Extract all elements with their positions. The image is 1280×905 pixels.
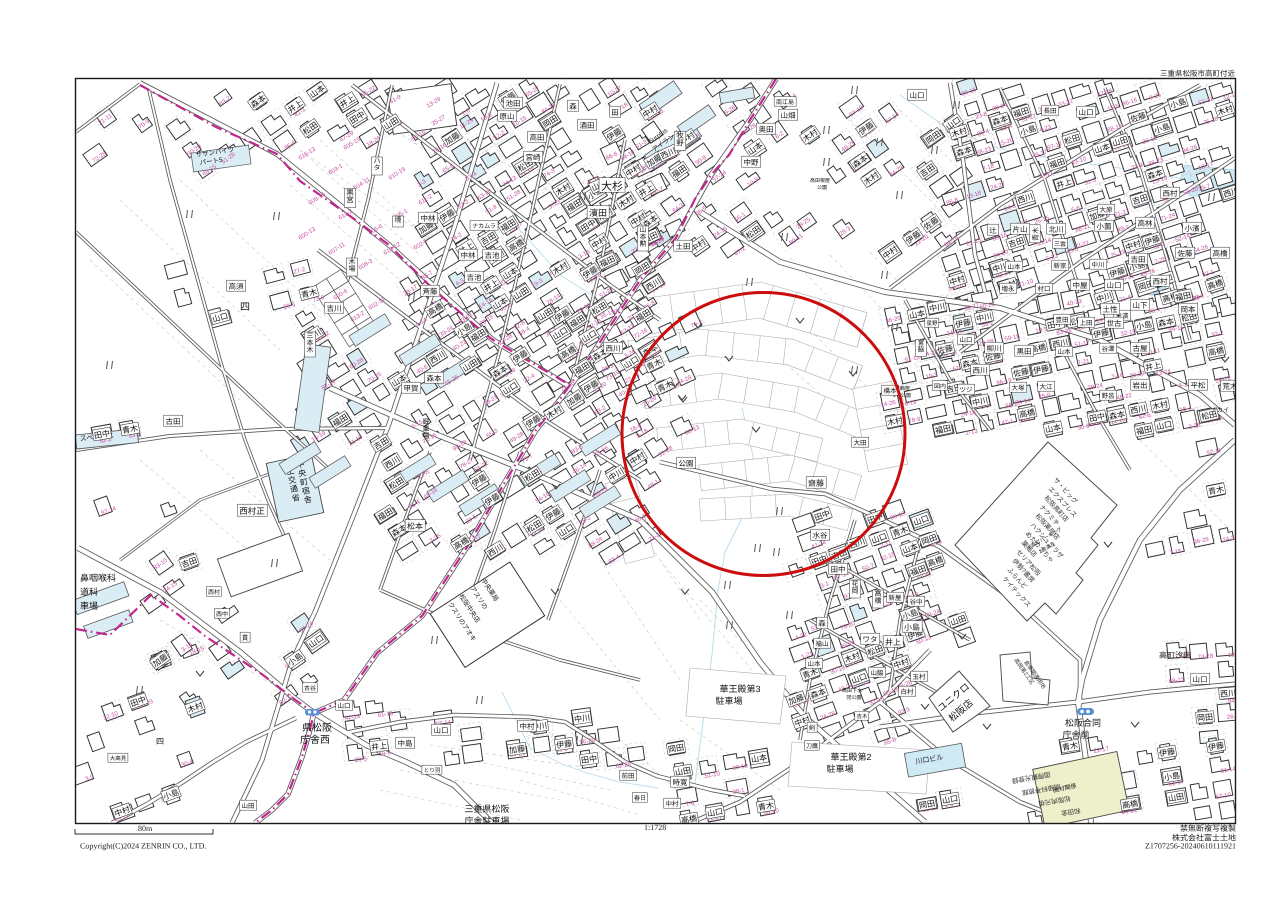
svg-text:団公園: 団公園 xyxy=(846,694,861,701)
svg-text:齋藤: 齋藤 xyxy=(808,479,824,488)
svg-text:高須: 高須 xyxy=(229,282,244,291)
svg-text:古田: 古田 xyxy=(166,417,181,426)
svg-text:Z1707256-20240610111921: Z1707256-20240610111921 xyxy=(1145,842,1236,851)
svg-text:山口: 山口 xyxy=(910,91,925,100)
svg-text:大高見: 大高見 xyxy=(110,755,127,762)
svg-text:中川: 中川 xyxy=(1092,261,1105,269)
svg-text:高田下水: 高田下水 xyxy=(842,687,862,694)
svg-text:大江: 大江 xyxy=(1040,383,1054,391)
svg-text:三重県松阪市高町付近: 三重県松阪市高町付近 xyxy=(1160,69,1235,78)
svg-text:庁舎前: 庁舎前 xyxy=(1062,730,1089,740)
svg-text:青木: 青木 xyxy=(1032,227,1040,241)
svg-text:剣: 剣 xyxy=(809,724,816,732)
svg-text:四: 四 xyxy=(156,737,164,746)
svg-text:小濱: 小濱 xyxy=(1185,224,1201,233)
svg-text:谷澤: 谷澤 xyxy=(1102,345,1116,353)
svg-text:森: 森 xyxy=(818,619,826,628)
svg-text:中林: 中林 xyxy=(461,251,476,260)
svg-text:佐藤: 佐藤 xyxy=(1178,249,1194,258)
svg-text:高町汐田: 高町汐田 xyxy=(1159,651,1191,660)
svg-text:吉池: 吉池 xyxy=(467,273,482,282)
svg-text:豊田: 豊田 xyxy=(1056,316,1069,324)
svg-text:高田: 高田 xyxy=(530,133,545,142)
svg-text:大原: 大原 xyxy=(1100,206,1114,214)
svg-text:黒田: 黒田 xyxy=(1017,347,1032,356)
svg-text:西川: 西川 xyxy=(1220,689,1237,699)
svg-text:松本: 松本 xyxy=(407,522,423,531)
svg-text:車場: 車場 xyxy=(80,601,98,611)
svg-text:西村: 西村 xyxy=(1163,189,1179,198)
svg-text:ワタ: ワタ xyxy=(863,635,878,644)
svg-text:星野: 星野 xyxy=(926,320,938,327)
svg-text:山口: 山口 xyxy=(338,702,351,710)
svg-text:山口: 山口 xyxy=(1079,108,1094,117)
svg-text:中林: 中林 xyxy=(421,214,436,223)
svg-text:貫: 貫 xyxy=(242,634,249,642)
svg-text:刀鷹: 刀鷹 xyxy=(806,742,818,750)
svg-text:増永: 増永 xyxy=(1002,285,1016,293)
svg-text:山本: 山本 xyxy=(808,660,822,668)
svg-text:西村: 西村 xyxy=(1153,277,1169,286)
svg-text:68-12: 68-12 xyxy=(1169,677,1186,685)
svg-text:西村正: 西村正 xyxy=(239,506,265,516)
svg-text:木場: 木場 xyxy=(349,258,356,273)
svg-text:村口: 村口 xyxy=(1038,285,1051,293)
svg-text:ツジ: ツジ xyxy=(960,386,974,394)
svg-text:山田: 山田 xyxy=(242,802,255,810)
svg-text:酒田: 酒田 xyxy=(580,121,595,130)
svg-text:岩出: 岩出 xyxy=(1133,381,1148,390)
svg-text:県松阪: 県松阪 xyxy=(302,722,332,734)
svg-text:74-28: 74-28 xyxy=(1198,653,1215,661)
svg-text:世古: 世古 xyxy=(1107,319,1123,328)
svg-text:高橋: 高橋 xyxy=(875,590,882,605)
svg-text:橋本: 橋本 xyxy=(884,387,898,395)
svg-text:山口: 山口 xyxy=(1107,281,1122,290)
svg-text:宮脇: 宮脇 xyxy=(918,339,925,354)
svg-text:岡本: 岡本 xyxy=(1181,305,1197,314)
svg-text:井上: 井上 xyxy=(885,638,901,647)
svg-text:平松: 平松 xyxy=(1191,381,1207,390)
svg-text:前田: 前田 xyxy=(622,772,635,780)
svg-text:土田: 土田 xyxy=(676,242,691,251)
svg-text:柳川: 柳川 xyxy=(987,344,1002,353)
svg-text:辻: 辻 xyxy=(989,226,997,235)
svg-text:西川: 西川 xyxy=(973,366,988,375)
svg-text:山本: 山本 xyxy=(1008,263,1022,271)
svg-text:1:1728: 1:1728 xyxy=(644,823,666,832)
svg-text:山口: 山口 xyxy=(1193,675,1208,684)
svg-text:華王殿第2: 華王殿第2 xyxy=(830,752,871,762)
svg-text:時寛: 時寛 xyxy=(673,778,688,787)
svg-text:中島: 中島 xyxy=(398,739,413,748)
svg-text:松阪合同: 松阪合同 xyxy=(1065,718,1101,728)
svg-text:中村: 中村 xyxy=(520,722,535,731)
svg-text:大田: 大田 xyxy=(854,439,867,447)
svg-text:黒宮: 黒宮 xyxy=(346,188,354,205)
svg-text:池田: 池田 xyxy=(506,99,521,108)
svg-text:小島: 小島 xyxy=(904,623,920,632)
svg-text:ハタ: ハタ xyxy=(374,158,381,172)
svg-text:岡田: 岡田 xyxy=(1197,713,1214,723)
svg-text:道科: 道科 xyxy=(80,587,98,597)
svg-text:新屋: 新屋 xyxy=(889,594,903,602)
svg-text:新家: 新家 xyxy=(1054,262,1068,270)
svg-text:吉川: 吉川 xyxy=(327,304,342,313)
svg-text:80m: 80m xyxy=(138,824,153,833)
svg-text:中村: 中村 xyxy=(666,800,680,808)
svg-text:奥田: 奥田 xyxy=(759,125,774,134)
svg-text:山畑: 山畑 xyxy=(781,111,796,120)
svg-text:南江島: 南江島 xyxy=(776,98,794,106)
svg-text:上田: 上田 xyxy=(1080,319,1093,327)
svg-text:宮崎: 宮崎 xyxy=(526,153,541,162)
svg-text:厩車場: 厩車場 xyxy=(423,418,430,440)
svg-text:山下: 山下 xyxy=(1133,301,1149,310)
svg-text:田: 田 xyxy=(611,108,619,117)
svg-text:甲賀: 甲賀 xyxy=(404,384,419,393)
svg-text:庁舎西: 庁舎西 xyxy=(300,734,330,746)
svg-text:ナカイ: ナカイ xyxy=(1211,407,1229,414)
svg-text:玉村: 玉村 xyxy=(913,673,927,681)
svg-text:原山: 原山 xyxy=(500,112,515,121)
svg-text:山口: 山口 xyxy=(960,336,973,344)
svg-text:古谷: 古谷 xyxy=(304,684,316,692)
svg-text:大塚: 大塚 xyxy=(1012,384,1026,392)
svg-text:高田根屋: 高田根屋 xyxy=(810,177,830,184)
svg-text:山脇: 山脇 xyxy=(871,669,885,677)
svg-text:森: 森 xyxy=(569,102,577,111)
svg-text:中野: 中野 xyxy=(744,158,759,167)
svg-text:西村: 西村 xyxy=(208,588,220,596)
svg-text:華王殿第3: 華王殿第3 xyxy=(719,684,760,694)
svg-text:四: 四 xyxy=(240,302,250,313)
svg-text:とり羽: とり羽 xyxy=(424,767,441,774)
svg-text:吉田: 吉田 xyxy=(1131,255,1146,264)
svg-text:三重県松阪: 三重県松阪 xyxy=(464,804,509,814)
svg-text:斉藤: 斉藤 xyxy=(423,287,438,296)
svg-text:西川: 西川 xyxy=(606,344,621,353)
svg-text:大杉: 大杉 xyxy=(601,180,623,193)
svg-text:Copyright(C)2024 ZENRIN CO., L: Copyright(C)2024 ZENRIN CO., LTD. xyxy=(80,842,206,851)
svg-text:土性: 土性 xyxy=(1103,305,1119,314)
svg-text:花岡: 花岡 xyxy=(852,580,859,595)
svg-text:図内: 図内 xyxy=(934,382,946,390)
svg-text:駐車場: 駐車場 xyxy=(826,764,853,774)
svg-text:公園: 公園 xyxy=(817,184,827,191)
svg-text:濱田: 濱田 xyxy=(589,208,607,218)
svg-text:白村: 白村 xyxy=(901,688,915,696)
svg-text:長田: 長田 xyxy=(1044,107,1057,115)
svg-text:高林: 高林 xyxy=(1138,219,1154,228)
svg-text:山本: 山本 xyxy=(1058,348,1072,356)
svg-text:禁無断複写複製: 禁無断複写複製 xyxy=(1180,824,1236,833)
svg-text:谷中: 谷中 xyxy=(910,598,923,606)
svg-text:春日: 春日 xyxy=(634,794,646,802)
svg-text:水谷: 水谷 xyxy=(813,531,828,540)
svg-text:野呂: 野呂 xyxy=(1102,392,1115,400)
svg-text:小薗: 小薗 xyxy=(1097,222,1113,231)
svg-text:片山: 片山 xyxy=(1013,225,1028,234)
svg-text:西中: 西中 xyxy=(216,610,228,618)
svg-text:牧野: 牧野 xyxy=(676,131,684,148)
svg-text:ナカムラ: ナカムラ xyxy=(472,223,496,230)
svg-text:鼻咽喉科: 鼻咽喉科 xyxy=(80,573,116,583)
svg-text:中屋: 中屋 xyxy=(1073,281,1089,290)
svg-text:山本勲: 山本勲 xyxy=(640,226,647,248)
svg-text:三本木: 三本木 xyxy=(307,332,314,354)
svg-text:公園: 公園 xyxy=(679,459,694,468)
svg-text:駐車場: 駐車場 xyxy=(715,696,742,706)
svg-text:福山: 福山 xyxy=(816,640,829,648)
svg-text:田中: 田中 xyxy=(831,565,846,574)
svg-text:北川: 北川 xyxy=(1049,225,1064,234)
svg-text:森本: 森本 xyxy=(427,374,442,383)
svg-text:三雲: 三雲 xyxy=(1054,241,1066,248)
svg-text:吉木: 吉木 xyxy=(856,713,868,720)
svg-text:吉池: 吉池 xyxy=(485,251,500,260)
svg-text:古屋: 古屋 xyxy=(1133,344,1149,353)
svg-text:境: 境 xyxy=(395,216,402,224)
svg-text:山口: 山口 xyxy=(434,726,449,735)
svg-text:高橋: 高橋 xyxy=(1213,249,1229,258)
